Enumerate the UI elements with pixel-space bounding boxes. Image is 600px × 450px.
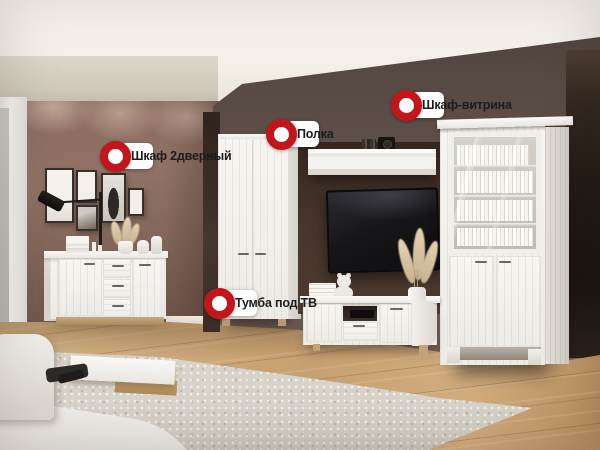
- sideboard-drawer: [103, 299, 131, 318]
- sideboard-drawer: [103, 259, 131, 278]
- tv-stand-door-handle: [390, 308, 403, 310]
- picture-frame: [76, 205, 98, 231]
- tv-stand-drawer-handle: [353, 325, 365, 327]
- decor-vase: [151, 236, 162, 254]
- wardrobe-handle: [255, 253, 266, 255]
- cabinet-handle: [475, 261, 487, 263]
- sideboard-plinth: [56, 317, 164, 325]
- picture-frame: [128, 188, 144, 216]
- tv-stand-leg: [419, 345, 428, 356]
- window-glass: [0, 108, 9, 348]
- target-marker-icon[interactable]: [100, 141, 131, 172]
- tv-stand-leg: [313, 344, 320, 351]
- target-marker-icon[interactable]: [204, 288, 235, 319]
- living-room-photo: Шкаф 2дверный Полка Шкаф-витрина Тумба п…: [0, 0, 600, 450]
- decor-candle: [92, 242, 96, 253]
- books-stack: [309, 283, 336, 296]
- label-text-wardrobe: Шкаф 2дверный: [131, 149, 231, 163]
- target-marker-icon[interactable]: [266, 119, 297, 150]
- sideboard-door-handle: [84, 263, 95, 265]
- dark-side-panel: [566, 50, 600, 358]
- cabinet-left-door: [449, 256, 494, 347]
- label-text-shelf: Полка: [297, 127, 333, 141]
- decor-boxes: [66, 236, 89, 253]
- decor-candle: [98, 245, 102, 253]
- decor-jug: [137, 240, 149, 254]
- sideboard-drawers: [103, 259, 131, 317]
- display-cabinet-glass-door: [449, 132, 541, 254]
- label-text-tv-stand: Тумба под ТВ: [235, 296, 317, 310]
- wall-shelf: [308, 149, 436, 175]
- wardrobe-leg: [278, 319, 286, 326]
- upper-wall-band: [0, 56, 218, 106]
- cabinet-right-door: [496, 256, 541, 347]
- sideboard-right-door: [132, 259, 165, 319]
- sideboard-left-door: [58, 259, 102, 316]
- tv-stand-corner-post: [412, 301, 437, 346]
- sideboard-top: [44, 251, 168, 258]
- sideboard-drawer: [103, 279, 131, 298]
- cabinet-handle: [499, 261, 511, 263]
- label-text-display-cabinet: Шкаф-витрина: [422, 98, 512, 112]
- cabinet-leg: [528, 349, 541, 365]
- target-marker-icon[interactable]: [391, 90, 422, 121]
- decor-vase: [118, 241, 133, 254]
- cabinet-leg: [447, 347, 460, 363]
- media-player: [350, 310, 374, 318]
- glass-reflection: [454, 137, 536, 249]
- display-cabinet-side: [545, 127, 569, 364]
- wardrobe-handle: [238, 253, 249, 255]
- wardrobe-leg: [222, 319, 230, 326]
- picture-frame: [101, 173, 126, 223]
